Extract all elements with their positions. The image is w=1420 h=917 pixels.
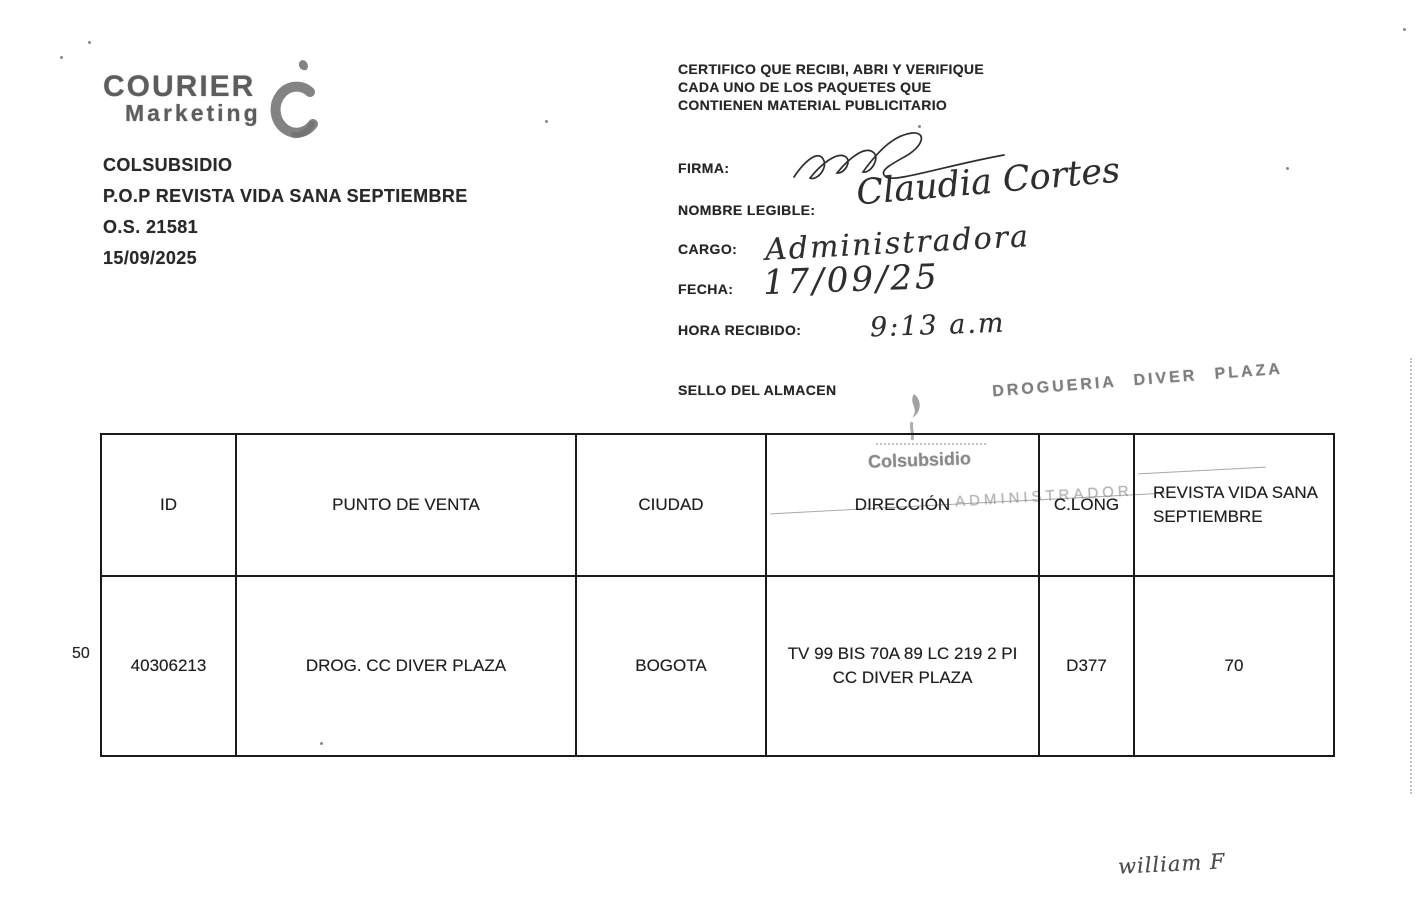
order-date: 15/09/2025 bbox=[103, 243, 468, 274]
scan-noise-dot bbox=[1286, 167, 1289, 170]
campaign-name: P.O.P REVISTA VIDA SANA SEPTIEMBRE bbox=[103, 181, 468, 212]
scan-noise-dot bbox=[1403, 28, 1406, 31]
certificate-line-2: CADA UNO DE LOS PAQUETES QUE bbox=[678, 78, 984, 96]
fecha-handwriting: 17/09/25 bbox=[762, 257, 940, 303]
header-ciudad: CIUDAD bbox=[577, 435, 767, 577]
cell-punto-de-venta: DROG. CC DIVER PLAZA bbox=[237, 577, 577, 757]
scan-noise-dot bbox=[60, 56, 63, 59]
certificate-line-3: CONTIENEN MATERIAL PUBLICITARIO bbox=[678, 96, 984, 114]
scanned-delivery-certificate: COURIER Marketing COLSUBSIDIO P.O.P REVI… bbox=[0, 0, 1420, 917]
cell-c-long: D377 bbox=[1040, 577, 1135, 757]
cell-ciudad: BOGOTA bbox=[577, 577, 767, 757]
order-info-block: COLSUBSIDIO P.O.P REVISTA VIDA SANA SEPT… bbox=[103, 150, 468, 274]
cell-direccion: TV 99 BIS 70A 89 LC 219 2 PI CC DIVER PL… bbox=[767, 577, 1040, 757]
courier-marketing-logo: COURIER Marketing bbox=[103, 70, 261, 127]
sello-almacen-label: SELLO DEL ALMACEN bbox=[678, 382, 836, 398]
cargo-label: CARGO: bbox=[678, 241, 737, 257]
logo-courier-text: COURIER bbox=[103, 70, 261, 104]
hora-recibido-handwriting: 9:13 a.m bbox=[870, 308, 1006, 344]
logo-marketing-text: Marketing bbox=[125, 100, 261, 127]
row-number: 50 bbox=[72, 645, 90, 663]
courier-signature-handwriting: william F bbox=[1117, 849, 1226, 879]
certificate-statement: CERTIFICO QUE RECIBI, ABRI Y VERIFIQUE C… bbox=[678, 60, 984, 114]
header-revista: REVISTA VIDA SANA SEPTIEMBRE bbox=[1135, 435, 1335, 577]
firma-label: FIRMA: bbox=[678, 160, 729, 176]
distribution-table: ID PUNTO DE VENTA CIUDAD DIRECCIÓN C.LON… bbox=[100, 433, 1335, 757]
cell-id: 40306213 bbox=[102, 577, 237, 757]
client-name: COLSUBSIDIO bbox=[103, 150, 468, 181]
nombre-legible-label: NOMBRE LEGIBLE: bbox=[678, 202, 815, 218]
drogueria-stamp-text: DROGUERIA DIVER PLAZA bbox=[992, 361, 1284, 402]
c-swoosh-icon bbox=[266, 58, 328, 144]
scan-noise-dot bbox=[88, 41, 91, 44]
certificate-line-1: CERTIFICO QUE RECIBI, ABRI Y VERIFIQUE bbox=[678, 60, 984, 78]
scan-noise-dot bbox=[545, 120, 548, 123]
fecha-label: FECHA: bbox=[678, 281, 733, 297]
header-id: ID bbox=[102, 435, 237, 577]
hora-recibido-label: HORA RECIBIDO: bbox=[678, 322, 801, 338]
header-punto-de-venta: PUNTO DE VENTA bbox=[237, 435, 577, 577]
header-direccion: DIRECCIÓN bbox=[767, 435, 1040, 577]
order-number: O.S. 21581 bbox=[103, 212, 468, 243]
scan-edge-artifact bbox=[1410, 358, 1412, 794]
cell-cantidad: 70 bbox=[1135, 577, 1335, 757]
header-c-long: C.LONG bbox=[1040, 435, 1135, 577]
